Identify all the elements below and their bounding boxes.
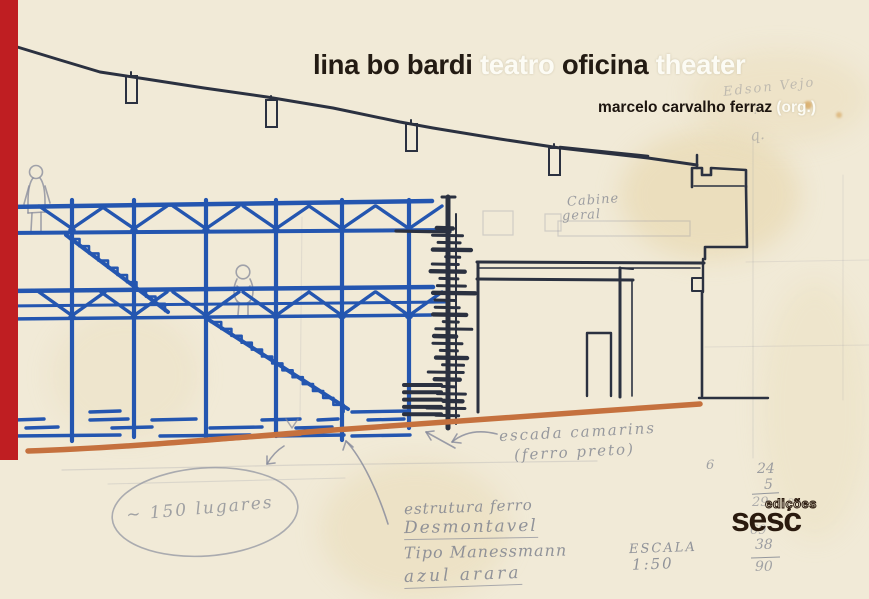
note-question-mark: ?: [753, 103, 760, 118]
note-estrutura-line4: azul arara: [404, 563, 522, 589]
book-title: lina bo bardi teatro oficina theater: [313, 50, 745, 80]
red-spine-stripe: [0, 0, 18, 460]
sum-5: 5: [764, 477, 773, 493]
note-escala-value: 1:50: [632, 554, 674, 573]
publisher-logo-sesc: edições sesc: [731, 496, 819, 548]
byline-org: (org.): [776, 99, 816, 116]
byline-name: marcelo carvalho ferraz: [598, 99, 772, 116]
title-teatro: teatro: [480, 49, 555, 80]
title-theater: theater: [656, 49, 746, 80]
note-estrutura-line2: Desmontavel: [404, 516, 538, 540]
standing-figure: [24, 166, 50, 232]
note-estrutura-line3: Tipo Manessmann: [404, 541, 567, 563]
byline: marcelo carvalho ferraz (org.): [598, 99, 816, 117]
publisher-name: sesc: [731, 503, 801, 537]
note-cabine-line2: geral: [562, 207, 602, 224]
sum-digit-6: 6: [706, 458, 714, 473]
blue-scaffolding: [6, 200, 450, 441]
sum-24: 24: [757, 461, 775, 477]
book-cover-teatro-oficina: lina bo bardi teatro oficina theater mar…: [0, 0, 869, 599]
note-initial: q.: [749, 125, 766, 145]
title-author: lina bo bardi: [313, 49, 473, 80]
pencil-underlay: [62, 140, 869, 484]
sum-90: 90: [755, 559, 773, 575]
title-oficina: oficina: [562, 49, 649, 80]
